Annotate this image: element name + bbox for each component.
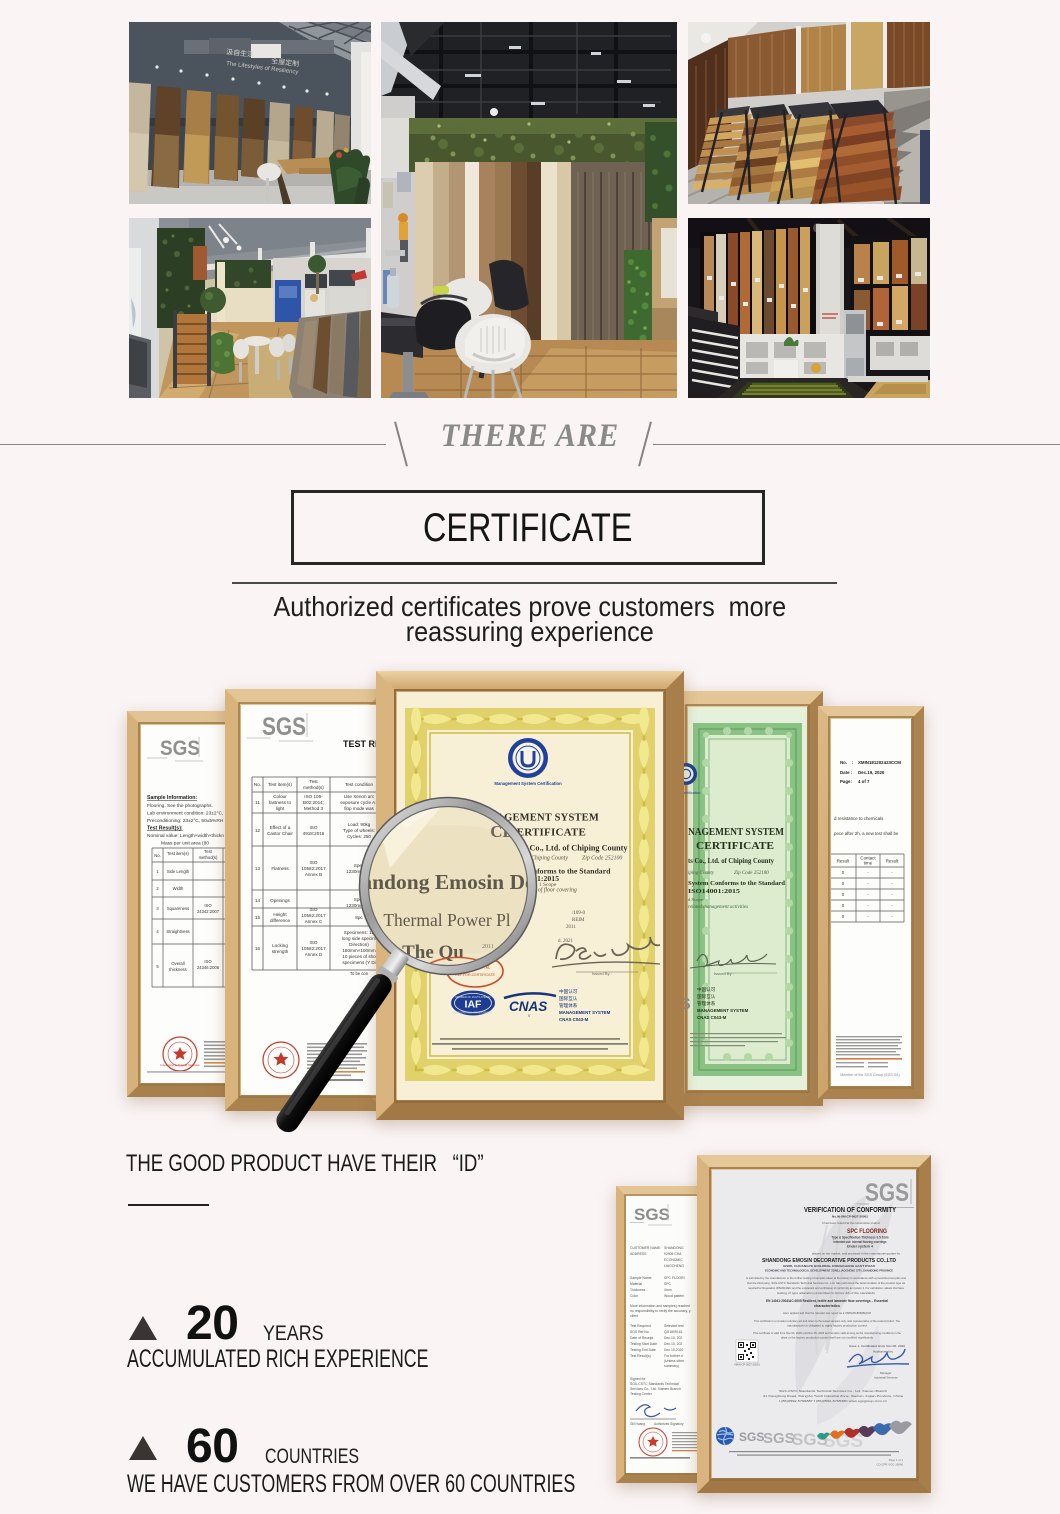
svg-text:VERIFICATION OF CONFORMITY: VERIFICATION OF CONFORMITY [804,1205,896,1214]
svg-text:ISO14001:2015: ISO14001:2015 [688,888,740,895]
svg-text:No.IN-XM-CP-0627-20001: No.IN-XM-CP-0627-20001 [832,1215,868,1219]
svg-text:ertification: ertification [684,791,700,795]
svg-text:SGS: SGS [763,1430,795,1447]
svg-text:Thermal Power Pl: Thermal Power Pl [383,910,510,930]
svg-text:thickness: thickness [169,967,186,972]
svg-text:placed on the market, and: placed on the market, and produced in th… [812,1252,901,1256]
svg-text:U I C C: U I C C [522,774,534,778]
svg-text:SGS: SGS [634,1205,670,1224]
svg-text:Lab environment condition: 23±: Lab environment condition: 23±2°C, [147,811,223,817]
svg-text:ECONOMIC: ECONOMIC [664,1258,683,1262]
svg-text:SPC: SPC [664,1282,672,1286]
svg-text:4mm: 4mm [664,1288,672,1292]
svg-text:SGS-CSTC Standards Technical S: SGS-CSTC Standards Technical Services Co… [779,1389,887,1393]
svg-text:d Scope:: d Scope: [688,897,704,902]
svg-text:Thickness: Thickness [630,1288,646,1292]
svg-text:t (86)0592-5766887 f (86)0: t (86)0592-5766887 f (86)0592-5765380 ww… [779,1399,887,1403]
svg-text:SGS: SGS [865,1179,909,1207]
svg-text:Result: Result [886,859,899,864]
svg-text:Issue 1. Certificated since No: Issue 1. Certificated since Nov 06, 2020 [849,1344,905,1348]
svg-text:This certificate is valid from: This certificate is valid from Nov 06, 2… [753,1331,901,1335]
svg-text:Dec.19,2020: Dec.19,2020 [664,1348,683,1352]
svg-text:Dec.10, 202: Dec.10, 202 [664,1342,682,1346]
svg-text:Gill Huang: Gill Huang [630,1422,645,1426]
svg-text:REIM: REIM [572,918,585,923]
svg-text:SGS: SGS [739,1430,764,1444]
svg-text:is submitted by the manufactur: is submitted by the manufacturer to the … [746,1276,906,1280]
svg-text:More information and samples): More information and samples) reached [630,1304,690,1308]
svg-text:time: time [864,861,873,866]
svg-text:Nominal value: Length×width×th: Nominal value: Length×width×thickn [147,833,224,839]
svg-text:This certificate is a constant: This certificate is a constant voluntary… [754,1319,900,1323]
svg-text:Under system 4: Under system 4 [847,1245,873,1249]
svg-text:Zip Code 252100: Zip Code 252100 [582,856,622,862]
svg-text:Overall: Overall [171,961,184,966]
svg-text:24342:2007: 24342:2007 [197,909,220,914]
svg-text:Sample Information:: Sample Information: [147,795,197,801]
svg-text:Services Co., Ltd. Xiamen Bran: Services Co., Ltd. Xiamen Branch [630,1387,681,1391]
svg-text:no responsibility to verify th: no responsibility to verify the accuracy… [630,1309,691,1313]
svg-text:manufacturer is obligated to a: manufacturer is obligated to apply facto… [787,1324,867,1328]
svg-text:ISO: ISO [204,959,212,964]
svg-text:/109-0: /109-0 [572,911,586,916]
svg-text:Page:: Page: [840,779,852,784]
svg-text:XMIN181202423CCM: XMIN181202423CCM [858,760,901,765]
svg-text:Straightness: Straightness [166,929,189,934]
svg-text:Material: Material [630,1282,642,1286]
svg-text:2011: 2011 [566,925,576,930]
svg-text:CNAS C043-M: CNAS C043-M [697,1015,727,1020]
svg-text:For further d: For further d [664,1354,683,1358]
svg-text:NAGEMENT SYSTEM: NAGEMENT SYSTEM [688,827,785,838]
svg-text:Preconditioning: 23±2°C, 50±5%: Preconditioning: 23±2°C, 50±5%RH [147,818,224,824]
svg-text:Signed for: Signed for [630,1377,646,1381]
svg-text:92905, CHUANGYE BUILDING, DONG: 92905, CHUANGYE BUILDING, DONGCHANG EAST… [783,1264,875,1268]
svg-text:LIAOCHENG: LIAOCHENG [664,1264,684,1268]
svg-text:SPC FLOORING: SPC FLOORING [847,1228,887,1235]
svg-text:Date :: Date : [840,770,853,775]
svg-text:were applied and that the rele: were applied and that the relevant test … [783,1311,872,1315]
svg-text:required for Regulation 305/20: required for Regulation 305/2011/EU and … [748,1286,904,1290]
svg-text:Testing End Date: Testing End Date [630,1348,656,1352]
svg-text:d. 2021: d. 2021 [558,939,574,944]
svg-text:Authorized by: Authorized by [873,1350,894,1354]
svg-text:4 of 7: 4 of 7 [858,779,870,784]
svg-text:EN 14041:2004/AC:2005 Resilien: EN 14041:2004/AC:2005 Resilient, textile… [766,1299,888,1303]
svg-text:Page 1 of 1: Page 1 of 1 [889,1458,904,1462]
svg-text:Squareness: Squareness [167,906,189,911]
svg-text:Issued By :: Issued By : [592,971,612,976]
svg-text:d resistance to chemicals: d resistance to chemicals [834,816,884,821]
svg-text:中国认可: 中国认可 [697,986,716,993]
svg-text:summary): summary) [664,1364,679,1368]
svg-text:Testing Center: Testing Center [630,1392,653,1396]
svg-text:SPC FLOORI: SPC FLOORI [664,1276,685,1280]
svg-text:SGS: SGS [160,737,200,760]
svg-text:SGS: SGS [262,713,306,741]
svg-text:SHANDONG: SHANDONG [664,1246,684,1250]
svg-text:that the third party, SGS-CSTC: that the third party, SGS-CSTC Standards… [747,1281,906,1285]
svg-text:plant or the factory productio: plant or the factory production control … [781,1336,874,1340]
svg-text:国际互认: 国际互认 [559,995,578,1002]
svg-text:Date of Receipt: Date of Receipt [630,1336,653,1340]
svg-text:Sample Name: Sample Name [630,1276,652,1280]
svg-text:Manager: Manager [880,1371,891,1375]
svg-text:Test Required: Test Required [630,1324,651,1328]
svg-text:No.: No. [840,760,847,765]
svg-text:Width: Width [173,886,184,891]
svg-text:92905 CHA: 92905 CHA [664,1252,682,1256]
svg-text:handong Emosin De: handong Emosin De [349,870,534,894]
svg-text:24346:2006: 24346:2006 [197,965,220,970]
svg-text:System Conforms to the Standar: System Conforms to the Standard [688,880,785,887]
svg-text:SGS Ref No.: SGS Ref No. [630,1330,650,1334]
svg-text:CERTIFICATE: CERTIFICATE [696,841,774,852]
svg-text:ADDRESS: ADDRESS [630,1252,647,1256]
svg-text:SGS-CSTC Standards Technical: SGS-CSTC Standards Technical [630,1382,679,1386]
svg-text:iping County: iping County [688,871,715,876]
svg-text:pece after 2h, a new test shal: pece after 2h, a new test shall be [834,831,899,836]
svg-text:ECONOMIC AND TECHNOLOGICAL DEV: ECONOMIC AND TECHNOLOGICAL DEVELOPMENT Z… [765,1269,893,1273]
svg-text:MANAGEMENT SYSTEM: MANAGEMENT SYSTEM [697,1008,749,1013]
svg-text:2011: 2011 [482,944,494,950]
svg-text:Test Result(s): Test Result(s) [630,1354,651,1358]
svg-text:Wood pattern: Wood pattern [664,1294,684,1298]
svg-text:characteristics: characteristics [814,1304,840,1308]
svg-text:管理体系: 管理体系 [559,1002,578,1009]
svg-text:Type & Specification Thicknes: Type & Specification Thickness 3.5-7mm [832,1236,889,1240]
svg-text:client: client [630,1314,638,1318]
svg-text:Intended use: Internal floorin: Intended use: Internal flooring covering… [834,1240,887,1244]
svg-text:Side Length: Side Length [167,869,190,874]
svg-text:ts Co., Ltd. of Chiping County: ts Co., Ltd. of Chiping County [688,857,774,865]
svg-text:31 Xianghong Road, Xiang'An To: 31 Xianghong Road, Xiang'An Torch Indust… [763,1394,903,1398]
svg-text:国际互认: 国际互认 [697,993,716,1000]
svg-text:CNAS C043-M: CNAS C043-M [559,1017,589,1022]
svg-text:Authorized Signatory: Authorized Signatory [654,1422,684,1426]
svg-text:Inspection & Testing Services: Inspection & Testing Services [160,1063,200,1067]
svg-text:Test item(s): Test item(s) [167,851,189,856]
svg-text:testing of type allocation pre: testing of type allocation prescribed in… [777,1291,876,1295]
svg-text:Result: Result [837,859,850,864]
svg-text:管理体系: 管理体系 [697,1000,716,1007]
svg-text:Selected test: Selected test [664,1324,684,1328]
svg-text:XMIN-CP-0627-20001: XMIN-CP-0627-20001 [734,1363,760,1367]
svg-text:Flooring. See the photographs.: Flooring. See the photographs. [147,803,213,809]
svg-text:Zip Code 252100: Zip Code 252100 [734,871,769,876]
svg-text:It has been noted that the con: It has been noted that the construction … [822,1221,880,1225]
svg-text:CD-CPR-VOC-19046: CD-CPR-VOC-19046 [876,1463,903,1467]
svg-text:(Unless other: (Unless other [664,1359,685,1363]
svg-text:QJI1809161: QJI1809161 [664,1330,683,1334]
svg-text:Test: Test [204,849,213,854]
svg-text:CUSTOMER NAME:: CUSTOMER NAME: [630,1246,661,1250]
svg-text:Mass per unit area (80: Mass per unit area (80 [161,841,209,847]
svg-text:ISO: ISO [204,903,212,908]
svg-text:中国认可: 中国认可 [559,988,578,995]
svg-text:Test Result(s):: Test Result(s): [147,826,183,832]
svg-text:Issued By :: Issued By : [714,971,734,976]
svg-text:method(s): method(s) [199,855,218,860]
svg-text:Dec.19, 2020: Dec.19, 2020 [858,770,885,775]
svg-text:No.: No. [154,853,161,858]
svg-text:Testing Start Date: Testing Start Date [630,1342,657,1346]
svg-text:Color: Color [630,1294,639,1298]
svg-text:Dec.10, 202: Dec.10, 202 [664,1336,682,1340]
svg-text:Industrial Services: Industrial Services [874,1376,898,1380]
svg-text:Member of the SGS Group (SGS S: Member of the SGS Group (SGS SA) [840,1073,900,1077]
svg-text:related management activities: related management activities [688,905,748,910]
svg-text:MANAGEMENT SYSTEM: MANAGEMENT SYSTEM [559,1010,611,1015]
